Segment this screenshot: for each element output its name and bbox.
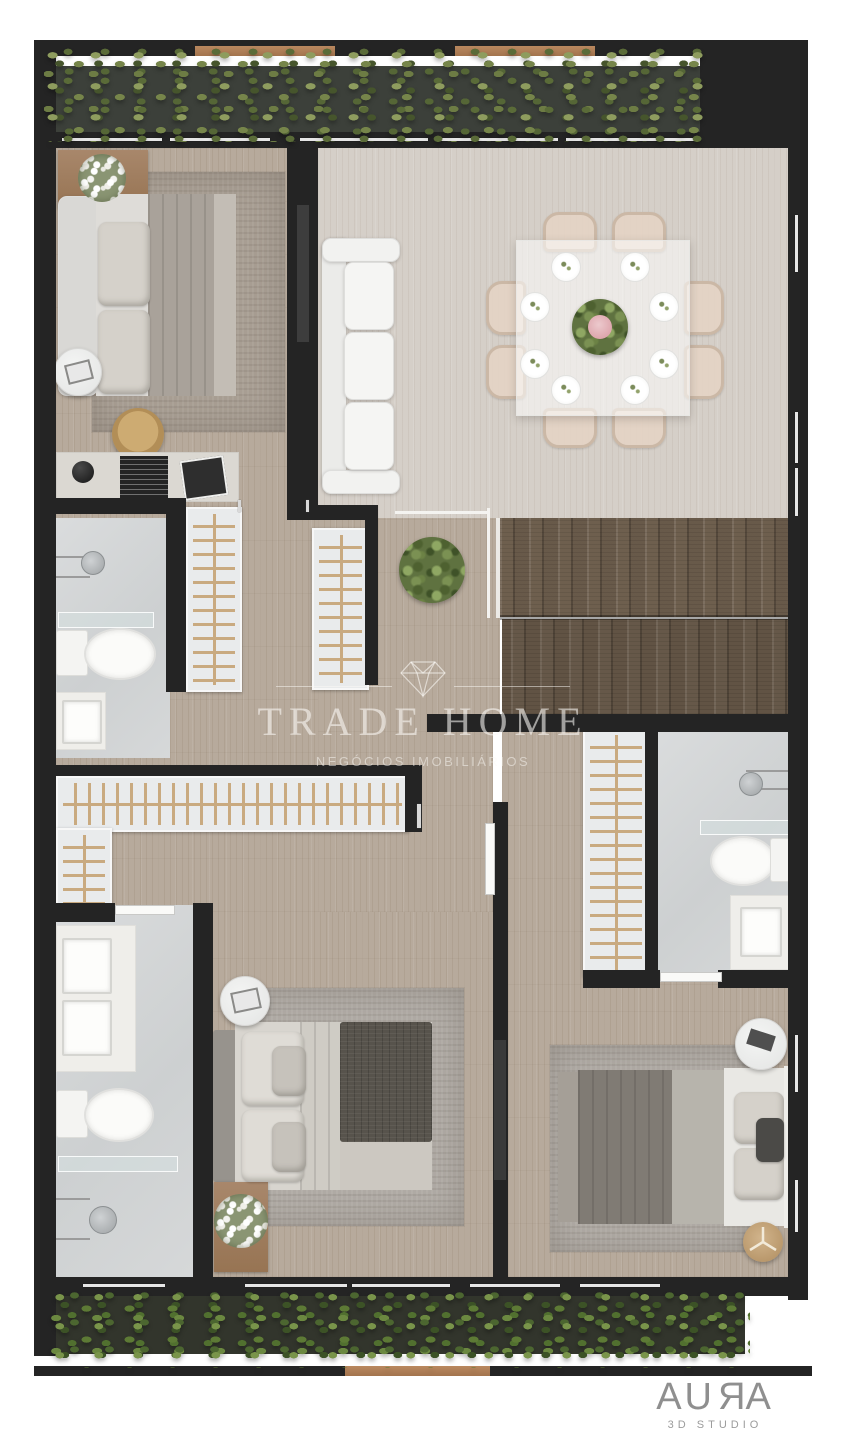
bed-3-dark-pillow (756, 1118, 784, 1162)
wall-closet-bath2 (645, 725, 658, 978)
window-frame (795, 1180, 798, 1232)
wall-right-exterior (788, 40, 808, 1300)
door-leaf (115, 905, 175, 915)
laptop (120, 456, 168, 504)
wall-bath1-right (166, 498, 186, 692)
window-frame (795, 1035, 798, 1092)
place-setting-plate (649, 292, 679, 322)
wardrobe-closet-tall (583, 728, 649, 977)
place-setting-plate (551, 252, 581, 282)
bed-3-foot-drape (558, 1072, 580, 1222)
toilet-bowl (84, 1088, 154, 1142)
glass-shelf (700, 820, 790, 835)
place-setting-plate (551, 375, 581, 405)
wall-left-exterior (34, 56, 56, 1356)
wall-below-stairs (427, 714, 788, 732)
wall-bath2-bottom-right (718, 970, 790, 988)
dining-chair (684, 281, 724, 335)
window-frame (795, 412, 798, 463)
stair-railing-glass (395, 511, 487, 514)
toilet-bowl (84, 628, 156, 680)
door-jamb (417, 804, 421, 828)
sofa-armrest-bottom (322, 470, 400, 494)
glass-shelf (58, 1156, 178, 1172)
sofa-cushion (344, 332, 394, 400)
window-frame (795, 468, 798, 516)
sliding-door-leaf (494, 1040, 506, 1180)
wood-stool (743, 1222, 783, 1262)
bed-1-pillow-top (98, 222, 150, 306)
window-frame (245, 1284, 347, 1287)
bed-2-dark-throw (340, 1022, 432, 1142)
desk-sphere-decor (72, 461, 94, 483)
bed-2-duvet-fold (300, 1022, 344, 1190)
stair-edge-trim (496, 518, 500, 618)
bed-3-light-blanket (672, 1070, 724, 1224)
door-jamb (306, 500, 309, 512)
shower-head-icon (89, 1206, 117, 1234)
sink-basin (740, 907, 782, 957)
dining-chair (684, 345, 724, 399)
shower-head-icon (81, 551, 105, 575)
window-frame (83, 1284, 165, 1287)
bed-2-accent-pillow (272, 1122, 306, 1172)
desk-photo-frame (179, 455, 228, 501)
studio-logo: AURA 3D STUDIO (640, 1378, 790, 1431)
sofa-back (322, 238, 346, 492)
place-setting-plate (520, 349, 550, 379)
toilet-tank (770, 838, 790, 882)
wall-bath3-top (56, 903, 115, 922)
stool-spokes-icon (743, 1222, 783, 1262)
window-frame (580, 1284, 660, 1287)
place-setting-plate (649, 349, 679, 379)
bed-2-headboard (213, 1030, 237, 1182)
door-leaf (660, 972, 722, 982)
door-jamb (238, 500, 241, 512)
wardrobe-closet-small (56, 828, 112, 912)
toilet-bowl (710, 836, 776, 886)
place-setting-plate (620, 252, 650, 282)
window-frame (352, 1284, 450, 1287)
centerpiece-flower (588, 315, 612, 339)
bed-2-duvet-end (340, 1142, 432, 1190)
door-leaf (485, 823, 495, 895)
flower-bouquet-1 (78, 154, 126, 202)
bed-3-dark-blanket (578, 1070, 672, 1224)
stair-landing-divider (500, 615, 788, 620)
place-setting-plate (620, 375, 650, 405)
sofa-cushion (344, 402, 394, 470)
wall-bath2-bottom-left (583, 970, 660, 988)
flower-bouquet-2 (214, 1194, 268, 1248)
sink-basin (62, 1000, 112, 1056)
window-frame (470, 1284, 560, 1287)
watermark-rule-right (454, 686, 570, 687)
shower-head-icon (739, 772, 763, 796)
diamond-icon (399, 660, 447, 698)
watermark-rule-left (276, 686, 392, 687)
shrub-planter-bottom (50, 1290, 750, 1368)
bed-2-accent-pillow (272, 1046, 306, 1096)
window-frame (795, 215, 798, 272)
place-setting-plate (520, 292, 550, 322)
wardrobe-closet (312, 528, 369, 690)
wall-closet-long-top (56, 765, 422, 776)
sofa-armrest-top (322, 238, 400, 262)
floor-plan-render: TRADE HOME NEGÓCIOS IMOBILIÁRIOS AURA 3D… (0, 0, 846, 1440)
bed-1-duvet-edge (214, 194, 236, 396)
wall-bath3-bedroom2 (193, 903, 213, 1283)
tv-panel (297, 205, 309, 342)
hedge-planter-top (44, 46, 708, 142)
stairs-lower-flight (502, 619, 788, 718)
stairs-upper-flight (500, 518, 788, 617)
sink-basin (62, 938, 112, 994)
wardrobe-closet (186, 507, 242, 692)
studio-logo-subtitle: 3D STUDIO (640, 1419, 790, 1431)
stair-railing-glass (487, 508, 490, 618)
sink-basin (62, 700, 102, 744)
glass-shelf (58, 612, 154, 628)
potted-plant (399, 537, 465, 603)
wardrobe-closet-long (56, 776, 409, 832)
sofa-cushion (344, 262, 394, 330)
studio-logo-name: AURA (640, 1378, 790, 1416)
wall-closet2-right (365, 505, 378, 685)
bed-1-pillow-bottom (98, 310, 150, 394)
